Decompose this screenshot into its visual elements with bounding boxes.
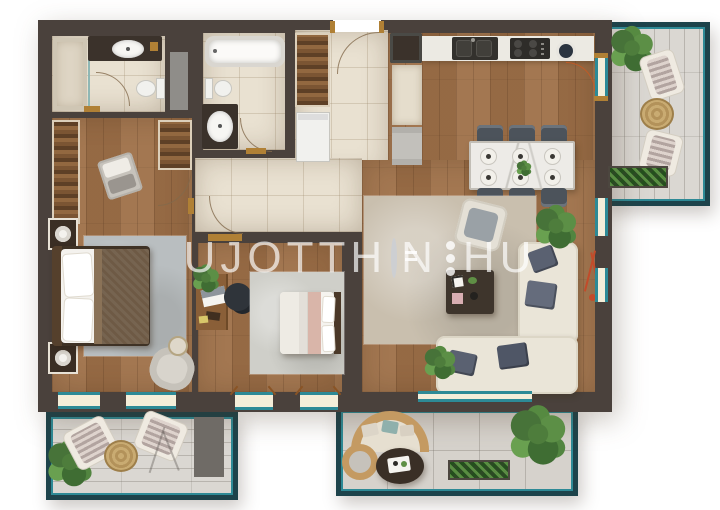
lounge-cushion [646,54,678,95]
place-setting-5 [512,169,529,186]
kitchen-door-sill-top [594,53,608,58]
kitchen-bowl [556,41,576,61]
lamp-1 [55,226,71,242]
living-plant-1 [549,219,564,234]
watermark-text-right: HU [463,233,537,283]
terrace-tray-dot-1 [393,461,398,466]
master-wardrobe-right [158,120,192,170]
dining-chair-6 [541,188,567,207]
kitchen-door-sill-bottom [594,96,608,101]
master-window-2 [126,392,176,409]
burner-2 [529,40,537,48]
sofa-pillow-4 [496,342,529,370]
desk-note [199,316,209,324]
watermark: UJOTTH N HU [195,230,525,286]
watermark-logo-o-icon [391,238,397,278]
toiletries [150,42,158,51]
burner-3 [514,49,522,57]
entrance-sill-left [330,21,335,33]
entry-wardrobe [295,33,330,107]
watermark-separator-dots-icon [446,241,455,276]
sink-1-drain [126,47,130,51]
fridge [390,33,422,63]
master-blanket [94,249,149,344]
terrace-tray-dot-2 [401,461,407,467]
terrace-plant-big [528,424,548,444]
master-window-1 [58,392,100,409]
master-wardrobe-left [52,120,80,224]
terrace-tray [387,456,411,474]
balcony-bl-table [104,440,138,472]
sink-basin-1 [456,40,472,57]
bed2-pillow-2 [321,325,335,353]
floorplan-image: UJOTTH N HU [0,0,720,510]
master-side-table [168,336,188,356]
bathroom2-door-sill [246,148,266,154]
terrace-planter [448,460,510,480]
duct-shaft [170,52,188,110]
terrace-bench-pillow-2 [381,420,399,435]
bedroom2-window-2 [300,392,338,410]
tall-cabinet [392,65,422,125]
dryer [392,127,422,165]
sink-2-drain [218,124,222,128]
toilet-2 [214,80,232,97]
toilet-1-tank [156,78,165,99]
place-setting-1 [480,148,497,165]
terrace-bench-pillow-3 [400,424,415,436]
place-setting-6 [544,169,561,186]
place-setting-3 [544,148,561,165]
master-door-sill [188,198,194,214]
balcony-tr-planter [608,166,668,188]
place-setting-4 [480,169,497,186]
burner-4 [529,49,537,57]
bathtub-basin [209,40,281,63]
bedroom2-window-1 [235,392,273,410]
balcony-tr-table [640,98,674,130]
toilet-2-tank [205,78,213,99]
balcony-bl-screen [194,417,224,477]
balcony-tr-plant [624,40,640,56]
lamp-2 [55,350,71,366]
burner-1 [514,40,522,48]
sink-basin-2 [476,40,492,57]
watermark-text-left: UJOTTH [184,233,388,283]
cooktop-knobs [541,41,544,55]
bed2-runner [308,292,321,354]
living-plant-2 [434,356,445,367]
coffee-table-bowl [470,292,478,300]
place-setting-2 [512,148,529,165]
kitchen-faucet [471,38,475,42]
master-blanket-fold [94,249,102,344]
sofa-pillow-2 [524,280,557,310]
washing-machine-panel [298,114,328,120]
bed2-pillow-1 [321,296,335,324]
entrance-opening [333,20,381,32]
living-window-2 [595,268,608,302]
living-window-1 [595,198,608,236]
coffee-table-note [452,293,463,304]
bed2-duvet [280,292,308,354]
table-centerpiece [521,165,526,170]
entrance-sill-right [379,21,384,33]
kitchen-balcony-door [595,58,608,96]
bathroom1-door-sill [84,106,100,112]
living-window-bottom [418,391,532,402]
toilet-1 [136,80,156,97]
shower [53,38,87,110]
bathtub-faucet [213,49,217,53]
terrace-round-chair [342,444,378,480]
master-pillow-1 [62,252,95,298]
master-pillow-2 [62,297,94,343]
